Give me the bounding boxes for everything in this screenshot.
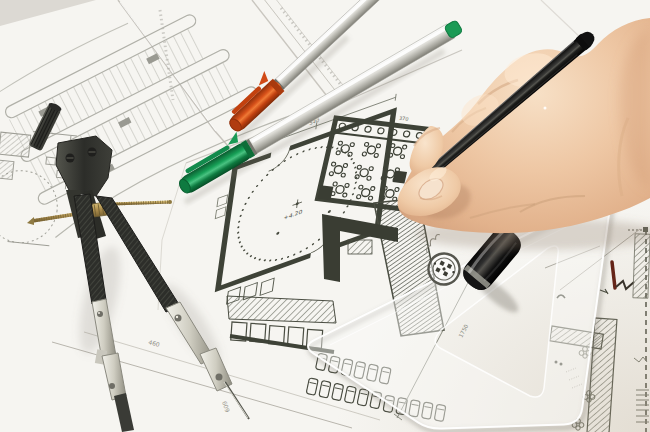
- scene-canvas: 12.04 +4.20 540 3: [0, 0, 650, 432]
- dimension-label-room: 370: [398, 115, 409, 122]
- photo-architect-desk: 12.04 +4.20 540 3: [0, 0, 650, 432]
